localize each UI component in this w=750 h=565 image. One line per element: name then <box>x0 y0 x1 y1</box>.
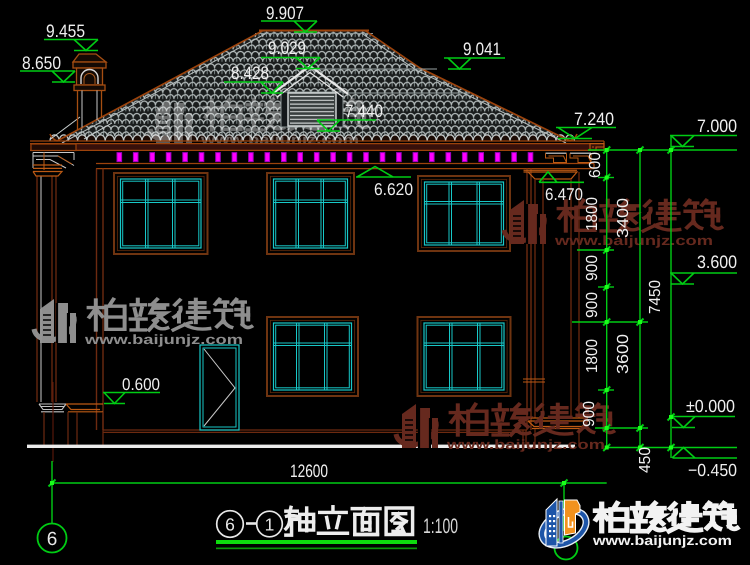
svg-text:www.baijunjz.com: www.baijunjz.com <box>84 332 243 347</box>
svg-text:8.650: 8.650 <box>22 53 61 73</box>
svg-text:7.440: 7.440 <box>345 101 383 121</box>
svg-text:6.470: 6.470 <box>545 185 583 204</box>
svg-text:1800: 1800 <box>584 339 601 373</box>
svg-text:600: 600 <box>587 152 604 178</box>
svg-text:−0.450: −0.450 <box>688 460 737 480</box>
svg-text:6.620: 6.620 <box>374 180 413 199</box>
svg-text:3400: 3400 <box>615 198 632 238</box>
svg-text:3600: 3600 <box>615 334 632 374</box>
svg-text:9.907: 9.907 <box>266 3 304 23</box>
svg-text:www.baijunjz.com: www.baijunjz.com <box>592 533 732 548</box>
svg-text:9.455: 9.455 <box>46 21 85 41</box>
svg-text:7.240: 7.240 <box>574 109 614 129</box>
svg-text:www.baijunjz.com: www.baijunjz.com <box>446 437 605 452</box>
svg-text:1800: 1800 <box>584 197 601 231</box>
svg-text:900: 900 <box>584 292 601 318</box>
svg-text:900: 900 <box>581 401 598 427</box>
svg-text:450: 450 <box>637 447 654 473</box>
svg-text:9.029: 9.029 <box>268 38 306 58</box>
svg-text:8.428: 8.428 <box>231 63 269 83</box>
svg-text:1:100: 1:100 <box>423 515 458 538</box>
svg-text:7.000: 7.000 <box>697 116 737 136</box>
svg-text:6: 6 <box>225 515 235 535</box>
svg-text:±0.000: ±0.000 <box>686 396 735 416</box>
svg-text:7450: 7450 <box>647 280 664 314</box>
svg-text:900: 900 <box>584 255 601 281</box>
svg-text:0.600: 0.600 <box>122 375 160 394</box>
svg-text:1: 1 <box>265 515 275 535</box>
svg-text:12600: 12600 <box>290 461 328 481</box>
svg-text:www.baijunjz.com: www.baijunjz.com <box>554 233 713 248</box>
svg-text:3.600: 3.600 <box>697 252 737 272</box>
svg-text:9.041: 9.041 <box>463 39 501 59</box>
svg-text:6: 6 <box>47 529 58 550</box>
